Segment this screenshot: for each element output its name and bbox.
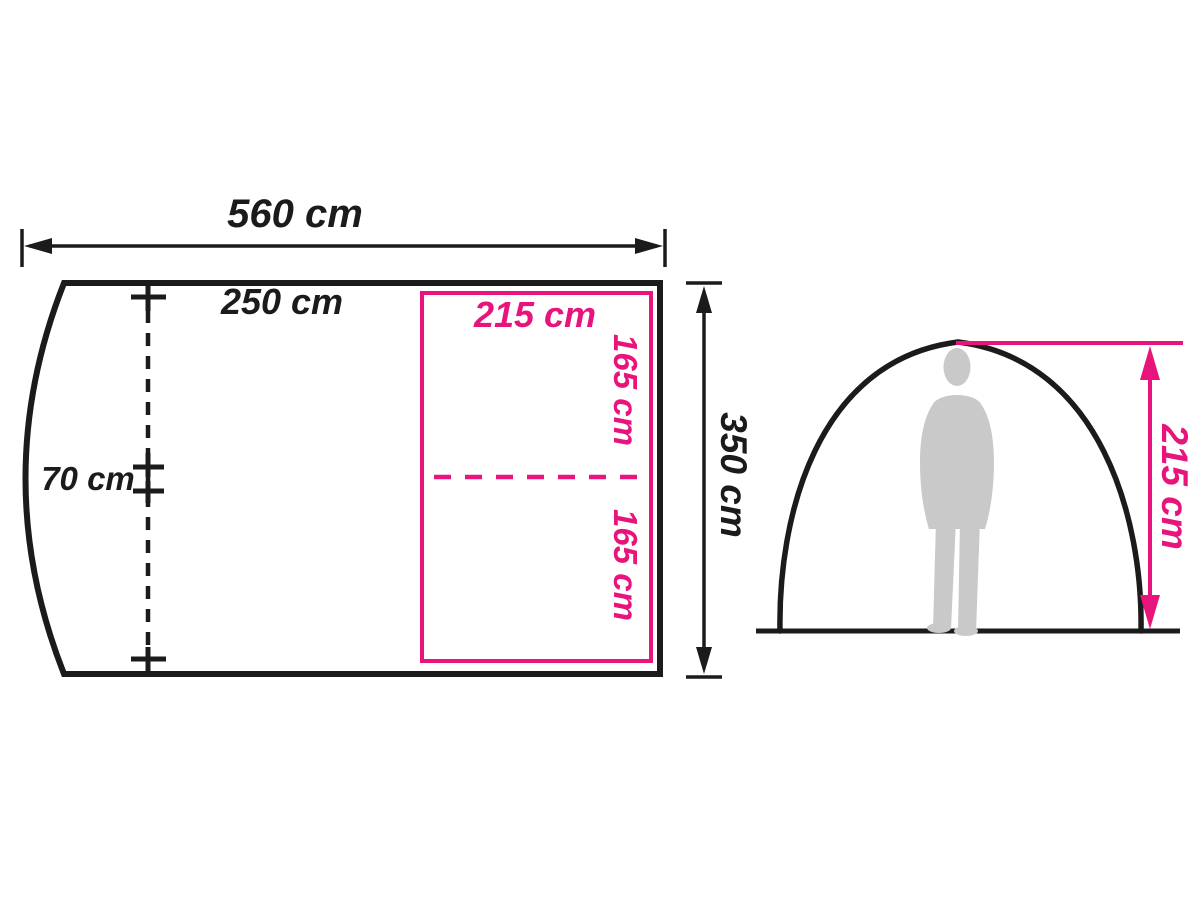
inner-width-label: 215 cm	[460, 296, 610, 334]
front-width-label: 250 cm	[207, 283, 357, 321]
silhouette-left-foot	[927, 623, 951, 633]
peak-height-label: 215 cm	[1155, 417, 1193, 557]
arrow-up-icon	[696, 286, 712, 313]
diagram-canvas	[0, 0, 1200, 900]
silhouette-left-leg	[933, 520, 956, 629]
silhouette-torso	[920, 395, 994, 529]
side-view	[756, 342, 1183, 636]
inner-depth-rear-label: 165 cm	[608, 505, 642, 625]
person-silhouette	[920, 348, 994, 636]
arrow-left-icon	[24, 238, 52, 254]
porch-depth-label: 70 cm	[33, 461, 143, 497]
arrow-down-icon	[696, 647, 712, 674]
silhouette-right-leg	[958, 520, 980, 632]
silhouette-right-foot	[954, 626, 978, 636]
tent-dimensions-diagram: 560 cm 250 cm 70 cm 215 cm 165 cm 165 cm…	[0, 0, 1200, 900]
arrow-up-icon	[1140, 346, 1160, 380]
total-width-label: 560 cm	[215, 192, 375, 236]
inner-depth-front-label: 165 cm	[608, 330, 642, 450]
arrow-right-icon	[635, 238, 663, 254]
total-depth-label: 350 cm	[714, 405, 752, 545]
silhouette-head	[944, 348, 971, 386]
